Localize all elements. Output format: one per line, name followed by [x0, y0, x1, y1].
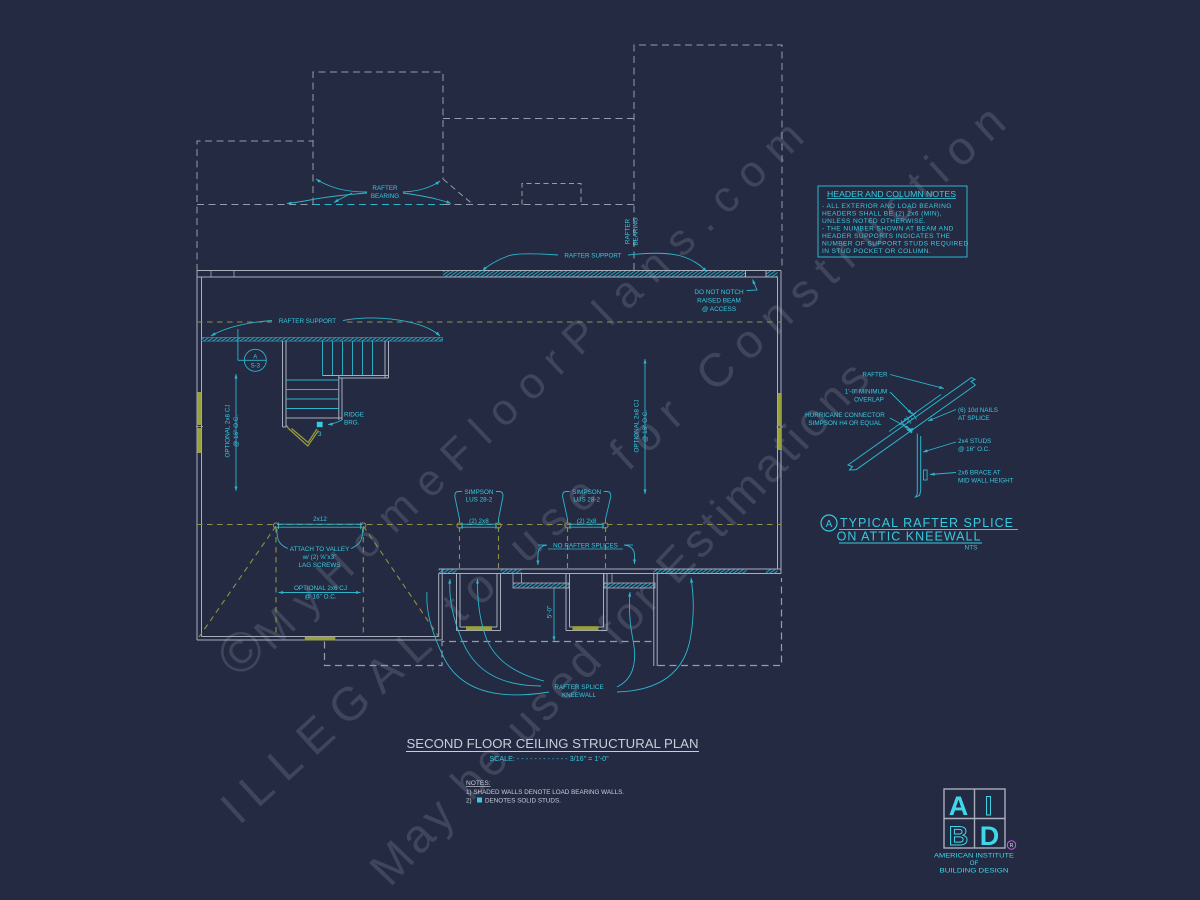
svg-text:BEARING: BEARING — [371, 193, 399, 200]
svg-text:(2) 2x8: (2) 2x8 — [469, 518, 489, 525]
svg-text:5'-0": 5'-0" — [547, 606, 554, 619]
svg-text:DO NOT NOTCH: DO NOT NOTCH — [694, 289, 744, 296]
svg-text:NUMBER OF SUPPORT STUDS REQUIR: NUMBER OF SUPPORT STUDS REQUIRED — [822, 241, 969, 248]
svg-text:RAFTER: RAFTER — [372, 185, 398, 192]
svg-text:NOTES:: NOTES: — [466, 780, 491, 787]
svg-text:1'-0" MINIMUM: 1'-0" MINIMUM — [845, 389, 888, 396]
svg-text:LUS 28-2: LUS 28-2 — [466, 497, 493, 504]
svg-text:OPTIONAL 2x8 CJ: OPTIONAL 2x8 CJ — [225, 405, 232, 458]
svg-text:2x6 BRACE AT: 2x6 BRACE AT — [958, 470, 1001, 477]
svg-text:A: A — [253, 355, 257, 361]
svg-text:LUS 28-2: LUS 28-2 — [573, 497, 600, 504]
svg-text:NO RAFTER SPLICES: NO RAFTER SPLICES — [553, 543, 618, 550]
svg-text:3: 3 — [318, 431, 322, 438]
svg-text:B: B — [949, 821, 969, 851]
svg-text:LAG SCREWS: LAG SCREWS — [299, 562, 341, 569]
svg-text:RAFTER SPLICE: RAFTER SPLICE — [554, 684, 603, 691]
svg-text:SCALE: - - - - - - - - - - -: SCALE: - - - - - - - - - - - - 3/16" = 1… — [489, 754, 609, 763]
svg-text:- THE NUMBER SHOWN AT BEAM AND: - THE NUMBER SHOWN AT BEAM AND — [822, 226, 954, 233]
svg-text:OF: OF — [970, 860, 979, 867]
svg-text:HEADERS SHALL BE (2) 2x6 (MIN): HEADERS SHALL BE (2) 2x6 (MIN), — [822, 211, 942, 218]
svg-text:TYPICAL RAFTER SPLICE: TYPICAL RAFTER SPLICE — [840, 516, 1014, 530]
svg-text:HURRICANE CONNECTOR: HURRICANE CONNECTOR — [805, 412, 885, 419]
svg-text:I: I — [985, 791, 993, 821]
svg-text:NTS: NTS — [965, 545, 979, 552]
svg-text:w/ (2) ⅝"x3": w/ (2) ⅝"x3" — [302, 554, 337, 561]
svg-text:RAFTER: RAFTER — [625, 218, 632, 244]
svg-text:UNLESS NOTED OTHERWISE.: UNLESS NOTED OTHERWISE. — [822, 218, 926, 225]
svg-text:@ ACCESS: @ ACCESS — [702, 306, 736, 313]
svg-text:SECOND FLOOR CEILING STRUCTURA: SECOND FLOOR CEILING STRUCTURAL PLAN — [407, 736, 699, 751]
svg-text:ON ATTIC KNEEWALL: ON ATTIC KNEEWALL — [837, 530, 982, 544]
svg-text:HEADER SUPPORTS INDICATES THE: HEADER SUPPORTS INDICATES THE — [822, 233, 951, 240]
svg-text:(2) 2x8: (2) 2x8 — [577, 518, 597, 525]
svg-text:@ 16" O.C.: @ 16" O.C. — [958, 446, 990, 453]
svg-text:BRG.: BRG. — [344, 420, 360, 427]
svg-text:RAFTER SUPPORT: RAFTER SUPPORT — [564, 253, 621, 260]
svg-text:OVERLAP: OVERLAP — [854, 397, 884, 404]
svg-text:DENOTES SOLID STUDS.: DENOTES SOLID STUDS. — [485, 798, 561, 805]
svg-text:2x12: 2x12 — [313, 516, 327, 523]
svg-text:AMERICAN INSTITUTE: AMERICAN INSTITUTE — [934, 853, 1014, 860]
svg-text:(6) 10d NAILS: (6) 10d NAILS — [958, 407, 998, 414]
svg-text:2x4 STUDS: 2x4 STUDS — [958, 438, 991, 445]
svg-text:KNEEWALL: KNEEWALL — [562, 692, 597, 699]
svg-text:R: R — [1010, 843, 1014, 849]
svg-text:A: A — [949, 791, 969, 821]
svg-text:IN STUD POCKET OR COLUMN.: IN STUD POCKET OR COLUMN. — [822, 248, 931, 255]
svg-text:SIMPSON: SIMPSON — [572, 489, 601, 496]
svg-text:BUILDING DESIGN: BUILDING DESIGN — [940, 868, 1010, 875]
svg-text:HEADER AND COLUMN NOTES: HEADER AND COLUMN NOTES — [827, 190, 956, 199]
svg-text:OPTIONAL 2x8 CJ: OPTIONAL 2x8 CJ — [634, 400, 641, 453]
svg-text:S-3: S-3 — [251, 364, 261, 370]
svg-text:SIMPSON H4 OR EQUAL: SIMPSON H4 OR EQUAL — [808, 420, 882, 427]
svg-text:AT SPLICE: AT SPLICE — [958, 415, 990, 422]
svg-text:1) SHADED WALLS DENOTE LOAD BE: 1) SHADED WALLS DENOTE LOAD BEARING WALL… — [466, 789, 624, 796]
svg-text:D: D — [980, 821, 1000, 851]
svg-text:ATTACH TO VALLEY: ATTACH TO VALLEY — [290, 546, 350, 553]
svg-text:RIDGE: RIDGE — [344, 412, 364, 419]
svg-text:MID WALL HEIGHT: MID WALL HEIGHT — [958, 478, 1014, 485]
svg-text:@ 16" O.C.: @ 16" O.C. — [304, 594, 336, 601]
svg-text:- ALL EXTERIOR AND LOAD BEARIN: - ALL EXTERIOR AND LOAD BEARING — [822, 203, 952, 210]
svg-text:RAFTER SUPPORT: RAFTER SUPPORT — [279, 318, 336, 325]
svg-text:2): 2) — [466, 798, 472, 805]
svg-text:OPTIONAL 2x6 CJ: OPTIONAL 2x6 CJ — [294, 585, 347, 592]
svg-text:@ 16" O.C.: @ 16" O.C. — [642, 410, 649, 442]
svg-text:SIMPSON: SIMPSON — [464, 489, 493, 496]
svg-text:RAFTER: RAFTER — [862, 372, 888, 379]
svg-text:BEARING: BEARING — [633, 217, 640, 245]
svg-text:RAISED BEAM: RAISED BEAM — [697, 298, 741, 305]
svg-text:A: A — [826, 519, 833, 530]
svg-text:@ 16" O.C.: @ 16" O.C. — [233, 415, 240, 447]
